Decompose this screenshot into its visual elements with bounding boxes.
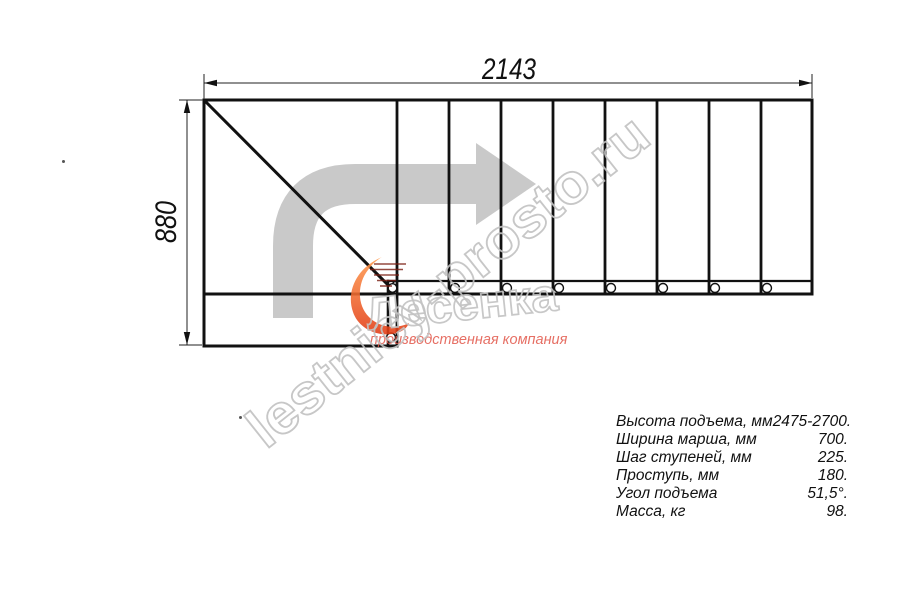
spec-row-height: Высота подъема, мм 2475-2700. [616, 413, 848, 431]
spec-value: 2475-2700. [773, 413, 851, 431]
spec-label: Шаг ступеней, мм [616, 449, 752, 467]
spec-value: 98. [826, 503, 848, 521]
spec-label: Проступь, мм [616, 467, 719, 485]
logo-brand-text: Лесенка [364, 268, 561, 340]
spec-label: Угол подъема [616, 485, 717, 503]
stair-drawing-page: 2143 880 производственная компания l [0, 0, 900, 600]
spec-value: 225. [818, 449, 848, 467]
scan-speck [62, 160, 65, 163]
spec-row-step-pitch: Шаг ступеней, мм 225. [616, 449, 848, 467]
spec-value: 180. [818, 467, 848, 485]
spec-label: Высота подъема, мм [616, 413, 773, 431]
spec-table: Высота подъема, мм 2475-2700. Ширина мар… [616, 413, 848, 521]
spec-label: Ширина марша, мм [616, 431, 757, 449]
spec-value: 51,5°. [807, 485, 848, 503]
spec-label: Масса, кг [616, 503, 685, 521]
scan-speck [239, 416, 242, 419]
spec-row-tread: Проступь, мм 180. [616, 467, 848, 485]
spec-row-march-width: Ширина марша, мм 700. [616, 431, 848, 449]
spec-row-angle: Угол подъема 51,5°. [616, 485, 848, 503]
dimension-height: 880 [150, 100, 202, 345]
spec-value: 700. [818, 431, 848, 449]
dim-height-label: 880 [150, 201, 183, 243]
dim-width-label: 2143 [481, 53, 536, 86]
dimension-width: 2143 [204, 53, 812, 98]
spec-row-mass: Масса, кг 98. [616, 503, 848, 521]
